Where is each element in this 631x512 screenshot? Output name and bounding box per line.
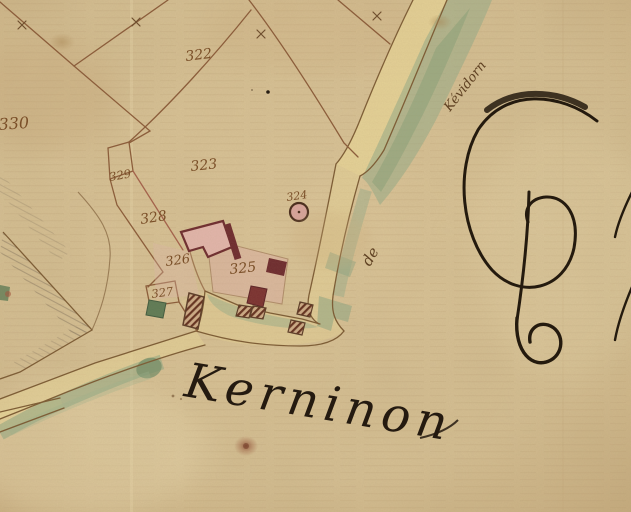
parcel-number-325: 325 <box>229 259 257 278</box>
parcel-number-322: 322 <box>185 46 214 65</box>
parcel-number-330: 330 <box>0 113 30 134</box>
map-stage: 322 323 324 325 326 327 328 329 330 de K… <box>0 0 631 512</box>
paper-grain <box>0 0 631 512</box>
parcel-number-323: 323 <box>190 156 218 175</box>
cadastral-map: 322 323 324 325 326 327 328 329 330 de K… <box>0 0 631 512</box>
